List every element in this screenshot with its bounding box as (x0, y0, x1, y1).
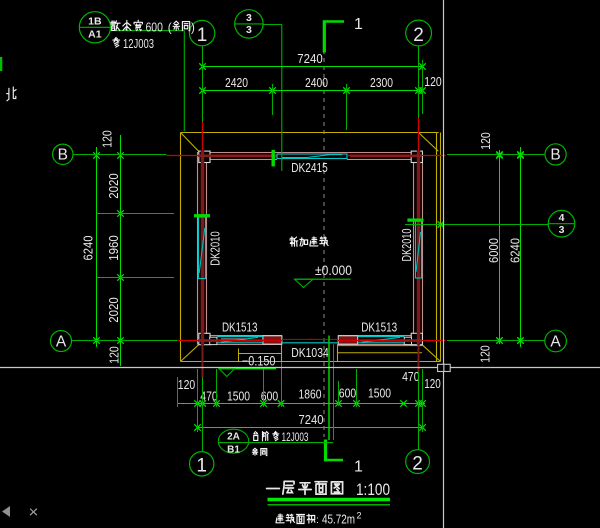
svg-text:×: × (29, 503, 39, 522)
svg-text:600: 600 (339, 386, 356, 401)
svg-text:2300: 2300 (370, 75, 393, 90)
svg-text:DK1513: DK1513 (222, 320, 258, 335)
svg-text:120: 120 (107, 346, 122, 363)
svg-text:470: 470 (402, 369, 419, 384)
svg-text:DK1034: DK1034 (291, 345, 329, 360)
svg-text:120: 120 (100, 130, 115, 147)
svg-text:2: 2 (412, 453, 423, 474)
svg-text:12J003: 12J003 (282, 430, 309, 444)
svg-text:1500: 1500 (227, 389, 250, 404)
svg-text:A: A (550, 333, 561, 350)
svg-text:120: 120 (178, 377, 195, 392)
svg-text:1500: 1500 (368, 386, 391, 401)
svg-text:1: 1 (354, 16, 363, 33)
svg-text:1860: 1860 (299, 387, 322, 402)
svg-text:±0.000: ±0.000 (315, 263, 352, 278)
svg-text:A: A (56, 333, 67, 350)
svg-text:B: B (58, 147, 68, 164)
svg-text:7240: 7240 (299, 412, 324, 427)
svg-text:DK1513: DK1513 (361, 320, 397, 335)
svg-text:2020: 2020 (106, 173, 121, 199)
svg-text:2420: 2420 (225, 75, 248, 90)
svg-text:4: 4 (559, 212, 565, 224)
svg-text:B1: B1 (227, 445, 240, 456)
svg-text:120: 120 (478, 132, 493, 149)
svg-text:(: ( (168, 23, 172, 35)
svg-text:6000: 6000 (486, 238, 501, 263)
svg-text:2020: 2020 (106, 297, 121, 323)
svg-text:1B: 1B (88, 15, 102, 27)
svg-text:6240: 6240 (508, 238, 523, 263)
svg-text:1:100: 1:100 (356, 481, 390, 499)
svg-text:1: 1 (354, 459, 363, 476)
svg-text:120: 120 (478, 345, 493, 362)
svg-text:2: 2 (413, 25, 424, 46)
svg-text::: : (316, 514, 319, 526)
svg-text:6240: 6240 (81, 236, 96, 261)
svg-text:B: B (550, 147, 560, 164)
svg-text:DK2415: DK2415 (291, 160, 328, 175)
svg-text:1: 1 (196, 456, 207, 477)
svg-text:−0.150: −0.150 (242, 353, 276, 368)
svg-text:A1: A1 (88, 28, 102, 40)
svg-text:2: 2 (357, 511, 362, 521)
svg-text:45.72m: 45.72m (322, 513, 355, 527)
svg-text:2A: 2A (227, 432, 240, 443)
svg-text:DK2010: DK2010 (208, 231, 223, 266)
svg-text:3: 3 (246, 12, 252, 24)
svg-text:120: 120 (424, 74, 441, 89)
svg-text:120: 120 (424, 377, 441, 391)
svg-text:7240: 7240 (297, 51, 323, 66)
svg-text:DK2010: DK2010 (399, 229, 414, 262)
svg-text:3: 3 (559, 224, 565, 236)
svg-text:2400: 2400 (305, 75, 328, 90)
svg-text:12J003: 12J003 (123, 37, 154, 51)
svg-text:1: 1 (197, 25, 208, 46)
svg-text:3: 3 (246, 24, 252, 36)
svg-text:): ) (191, 23, 195, 35)
svg-text:600: 600 (146, 21, 163, 35)
svg-text:1960: 1960 (106, 235, 121, 261)
